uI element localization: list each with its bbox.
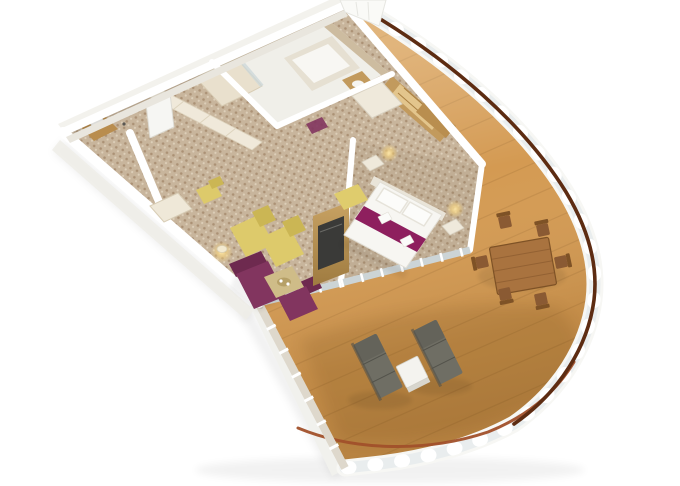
wall-lamp-glow-right bbox=[446, 200, 464, 218]
wall-lamp-glow-left bbox=[380, 144, 398, 162]
floor-plan-rendering bbox=[0, 0, 680, 486]
suite-rendering-canvas bbox=[0, 0, 680, 486]
door-handle bbox=[122, 122, 125, 125]
dining-table bbox=[489, 237, 556, 295]
floor-lamp bbox=[211, 241, 233, 263]
